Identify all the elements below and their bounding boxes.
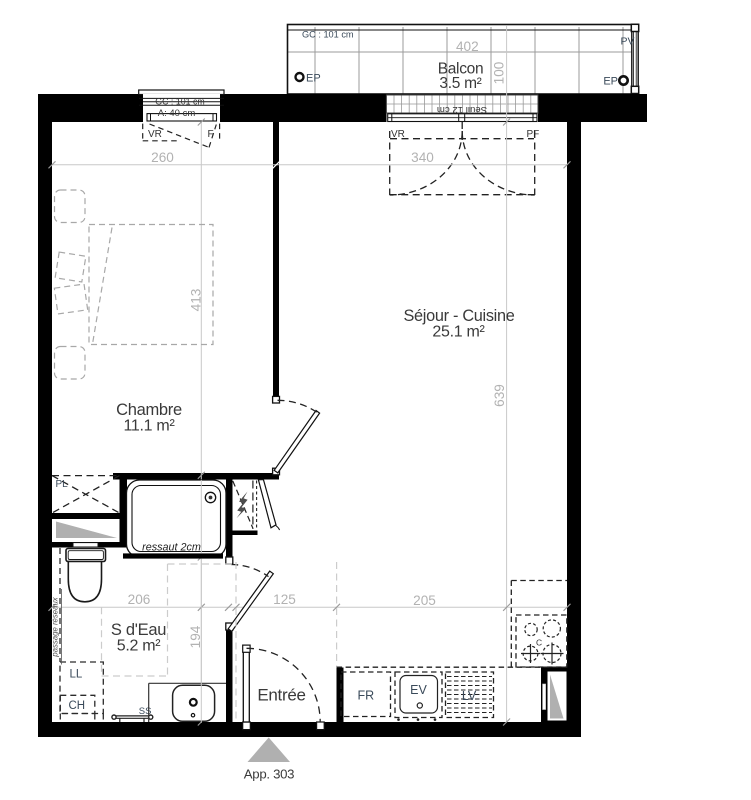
svg-text:Séjour - Cuisine: Séjour - Cuisine	[403, 307, 514, 325]
svg-text:passage réseaux: passage réseaux	[51, 596, 60, 657]
svg-text:206: 206	[128, 592, 151, 607]
svg-text:GC : 101 cm: GC : 101 cm	[302, 30, 354, 40]
svg-text:25.1 m²: 25.1 m²	[432, 324, 485, 341]
svg-text:413: 413	[188, 289, 203, 312]
svg-text:194: 194	[188, 625, 203, 648]
svg-text:Entrée: Entrée	[257, 685, 305, 704]
svg-text:LV: LV	[462, 689, 477, 703]
svg-text:App. 303: App. 303	[244, 767, 294, 782]
svg-text:100: 100	[492, 61, 507, 84]
svg-text:Chambre: Chambre	[116, 401, 182, 419]
svg-text:GC : 101 cm: GC : 101 cm	[155, 97, 204, 107]
svg-text:VR: VR	[148, 129, 162, 140]
svg-text:EP: EP	[603, 76, 618, 88]
svg-text:ressaut 2cm: ressaut 2cm	[142, 542, 201, 554]
svg-text:205: 205	[413, 593, 436, 608]
svg-text:Seuil 12 cm: Seuil 12 cm	[437, 104, 487, 115]
svg-text:A: 40 cm: A: 40 cm	[158, 108, 196, 119]
svg-text:FR: FR	[357, 689, 374, 703]
svg-text:402: 402	[456, 39, 479, 54]
svg-text:11.1 m²: 11.1 m²	[124, 418, 176, 435]
svg-text:CH: CH	[69, 700, 86, 712]
svg-text:639: 639	[492, 384, 507, 407]
svg-text:S d'Eau: S d'Eau	[111, 621, 166, 639]
svg-text:EP: EP	[306, 73, 321, 85]
svg-text:PL: PL	[56, 479, 69, 490]
svg-text:EV: EV	[410, 683, 427, 697]
svg-text:260: 260	[151, 150, 174, 165]
svg-text:LL: LL	[70, 669, 83, 681]
svg-text:125: 125	[273, 592, 296, 607]
svg-text:C: C	[536, 638, 542, 648]
svg-text:F: F	[208, 129, 214, 140]
svg-text:5.2 m²: 5.2 m²	[117, 638, 162, 655]
svg-text:340: 340	[411, 150, 434, 165]
svg-text:SS: SS	[139, 706, 152, 717]
svg-text:PV: PV	[621, 36, 635, 48]
svg-text:3.5 m²: 3.5 m²	[439, 75, 481, 92]
